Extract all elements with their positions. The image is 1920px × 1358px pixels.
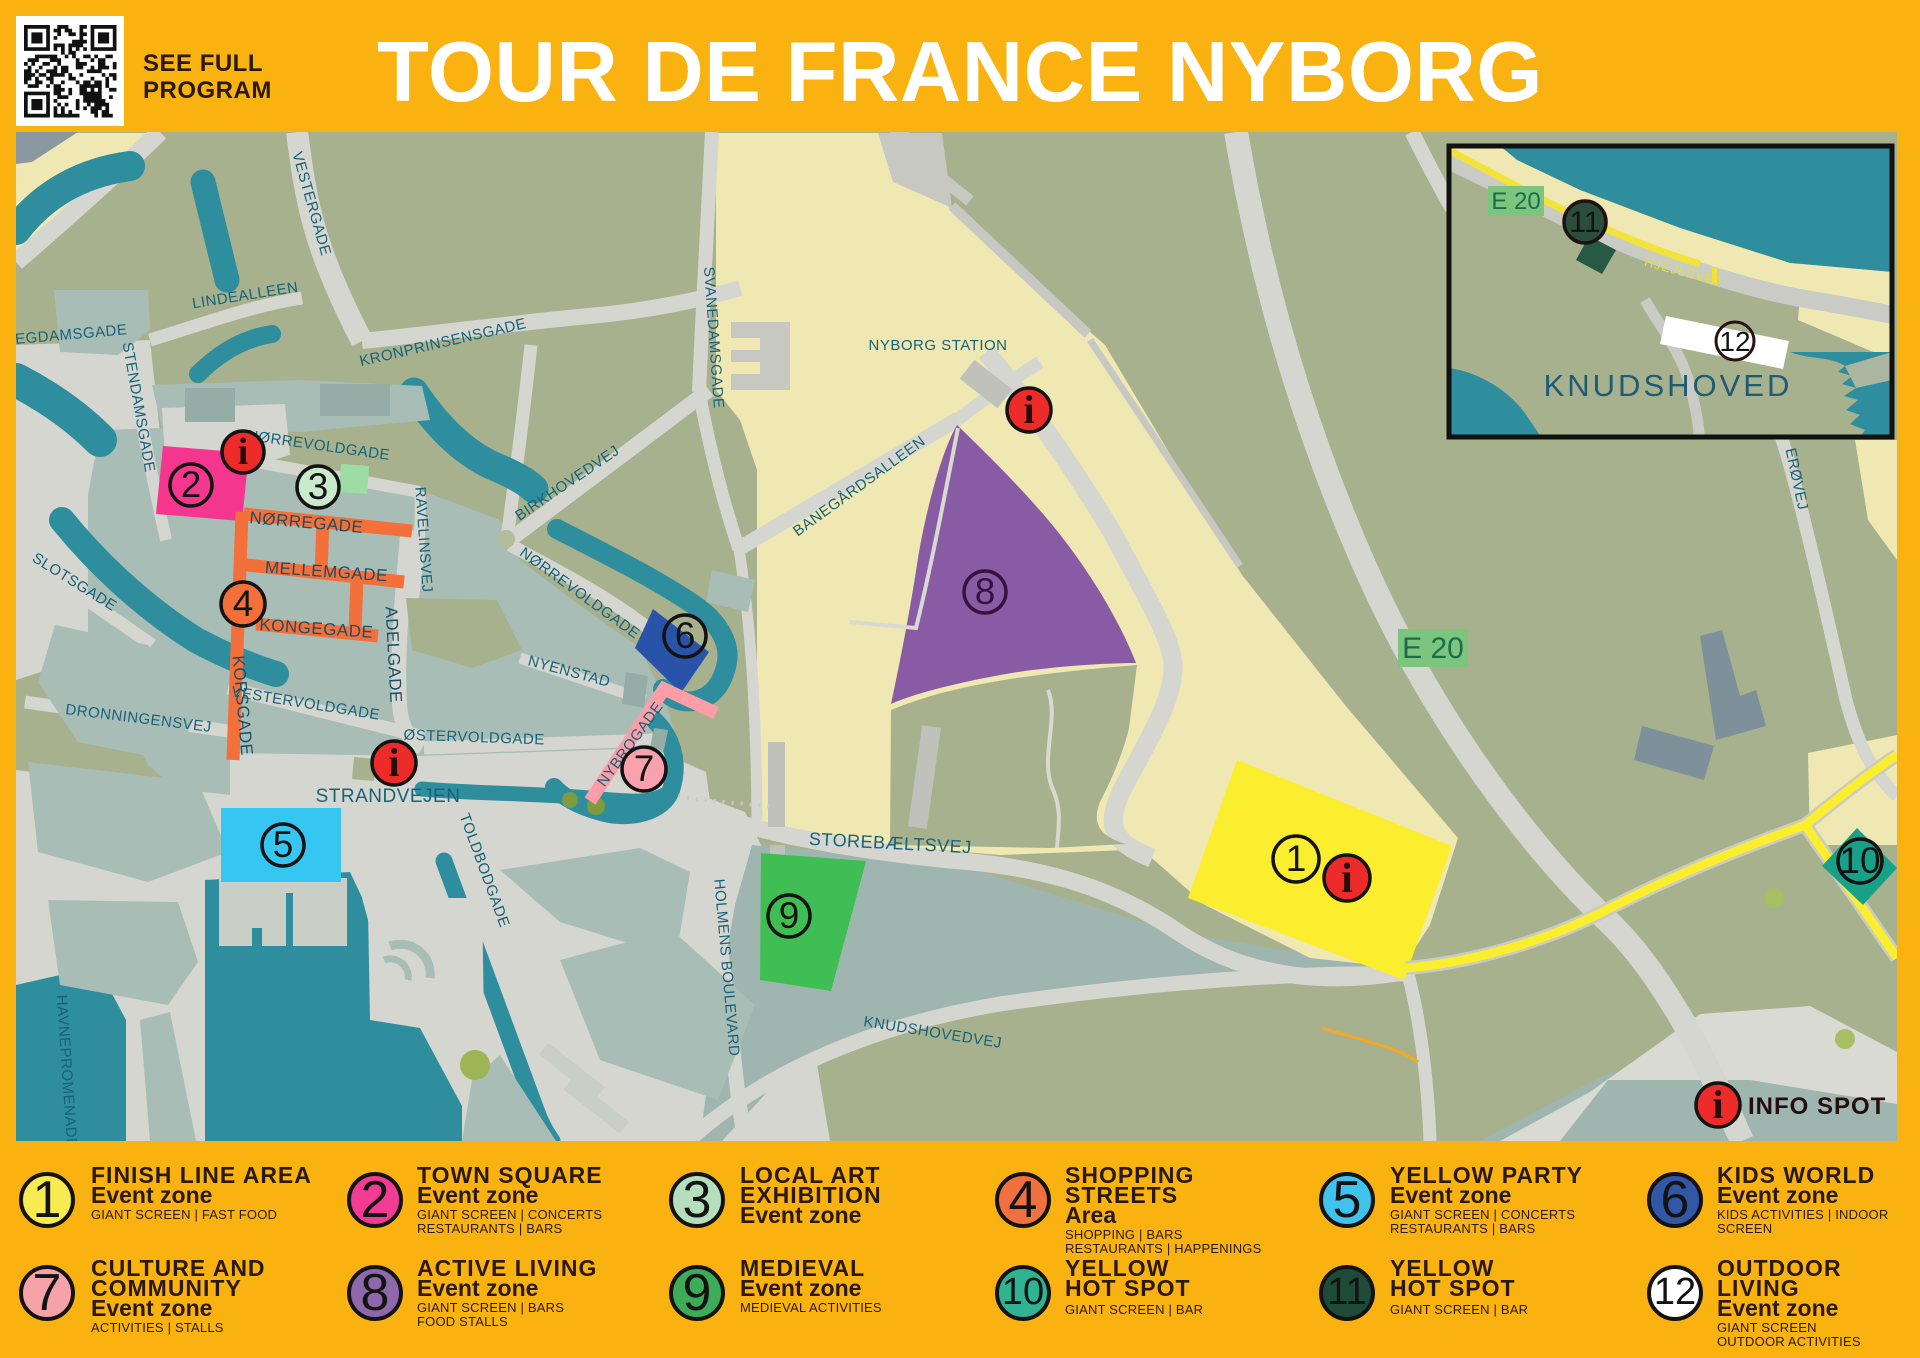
svg-text:10: 10 [1839,840,1880,881]
svg-text:i: i [1712,1082,1723,1127]
svg-text:3: 3 [308,466,329,507]
svg-text:2: 2 [181,464,202,505]
svg-text:E 20: E 20 [1491,188,1540,215]
svg-text:NYBORG STATION: NYBORG STATION [869,337,1008,354]
svg-text:i: i [1023,387,1034,432]
svg-text:i: i [1341,856,1353,902]
svg-text:7: 7 [634,748,655,789]
svg-text:KNUDSHOVED: KNUDSHOVED [1544,368,1793,403]
svg-text:STRANDVEJEN: STRANDVEJEN [316,786,461,807]
svg-text:i: i [388,740,399,785]
svg-text:4: 4 [233,583,254,624]
svg-text:11: 11 [1569,206,1600,239]
svg-text:12: 12 [1719,326,1750,357]
svg-text:9: 9 [779,895,800,936]
svg-text:INFO SPOT: INFO SPOT [1748,1093,1886,1120]
svg-text:5: 5 [273,824,294,865]
svg-text:1: 1 [1286,838,1307,879]
svg-text:E 20: E 20 [1402,632,1464,665]
svg-text:i: i [238,431,249,473]
svg-text:8: 8 [975,571,996,612]
svg-text:6: 6 [675,615,696,656]
